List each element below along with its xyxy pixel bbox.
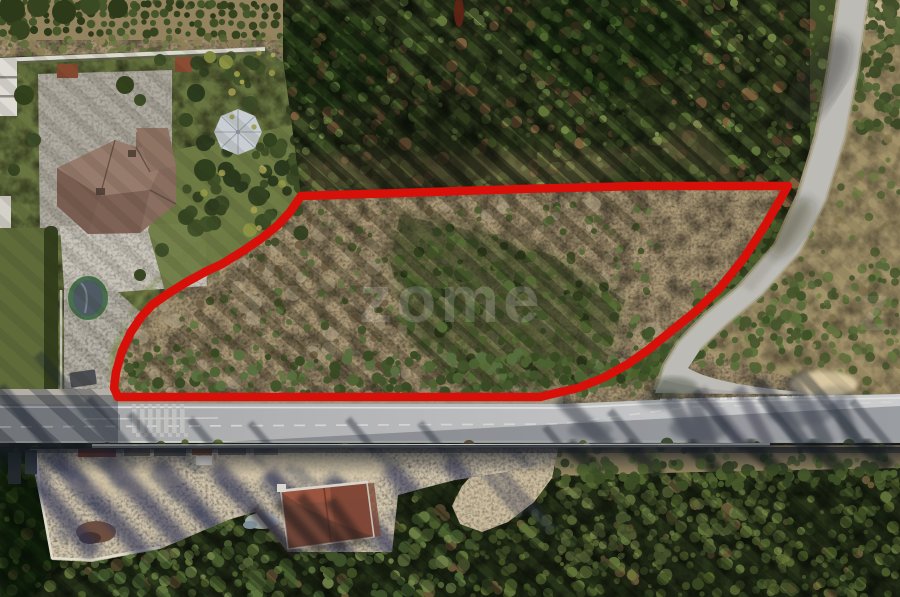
- svg-text:z: z: [858, 272, 890, 344]
- svg-text:zome: zome: [359, 262, 544, 336]
